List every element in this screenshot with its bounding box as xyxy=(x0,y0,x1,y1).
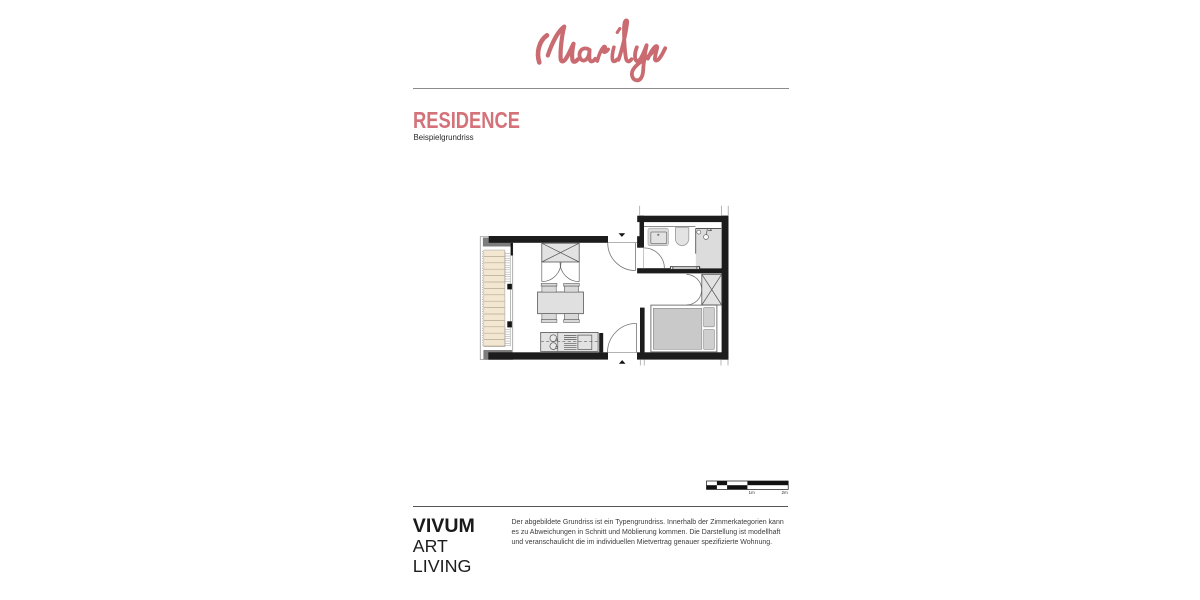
svg-text:1m: 1m xyxy=(749,490,756,495)
svg-text:2m: 2m xyxy=(782,490,789,495)
